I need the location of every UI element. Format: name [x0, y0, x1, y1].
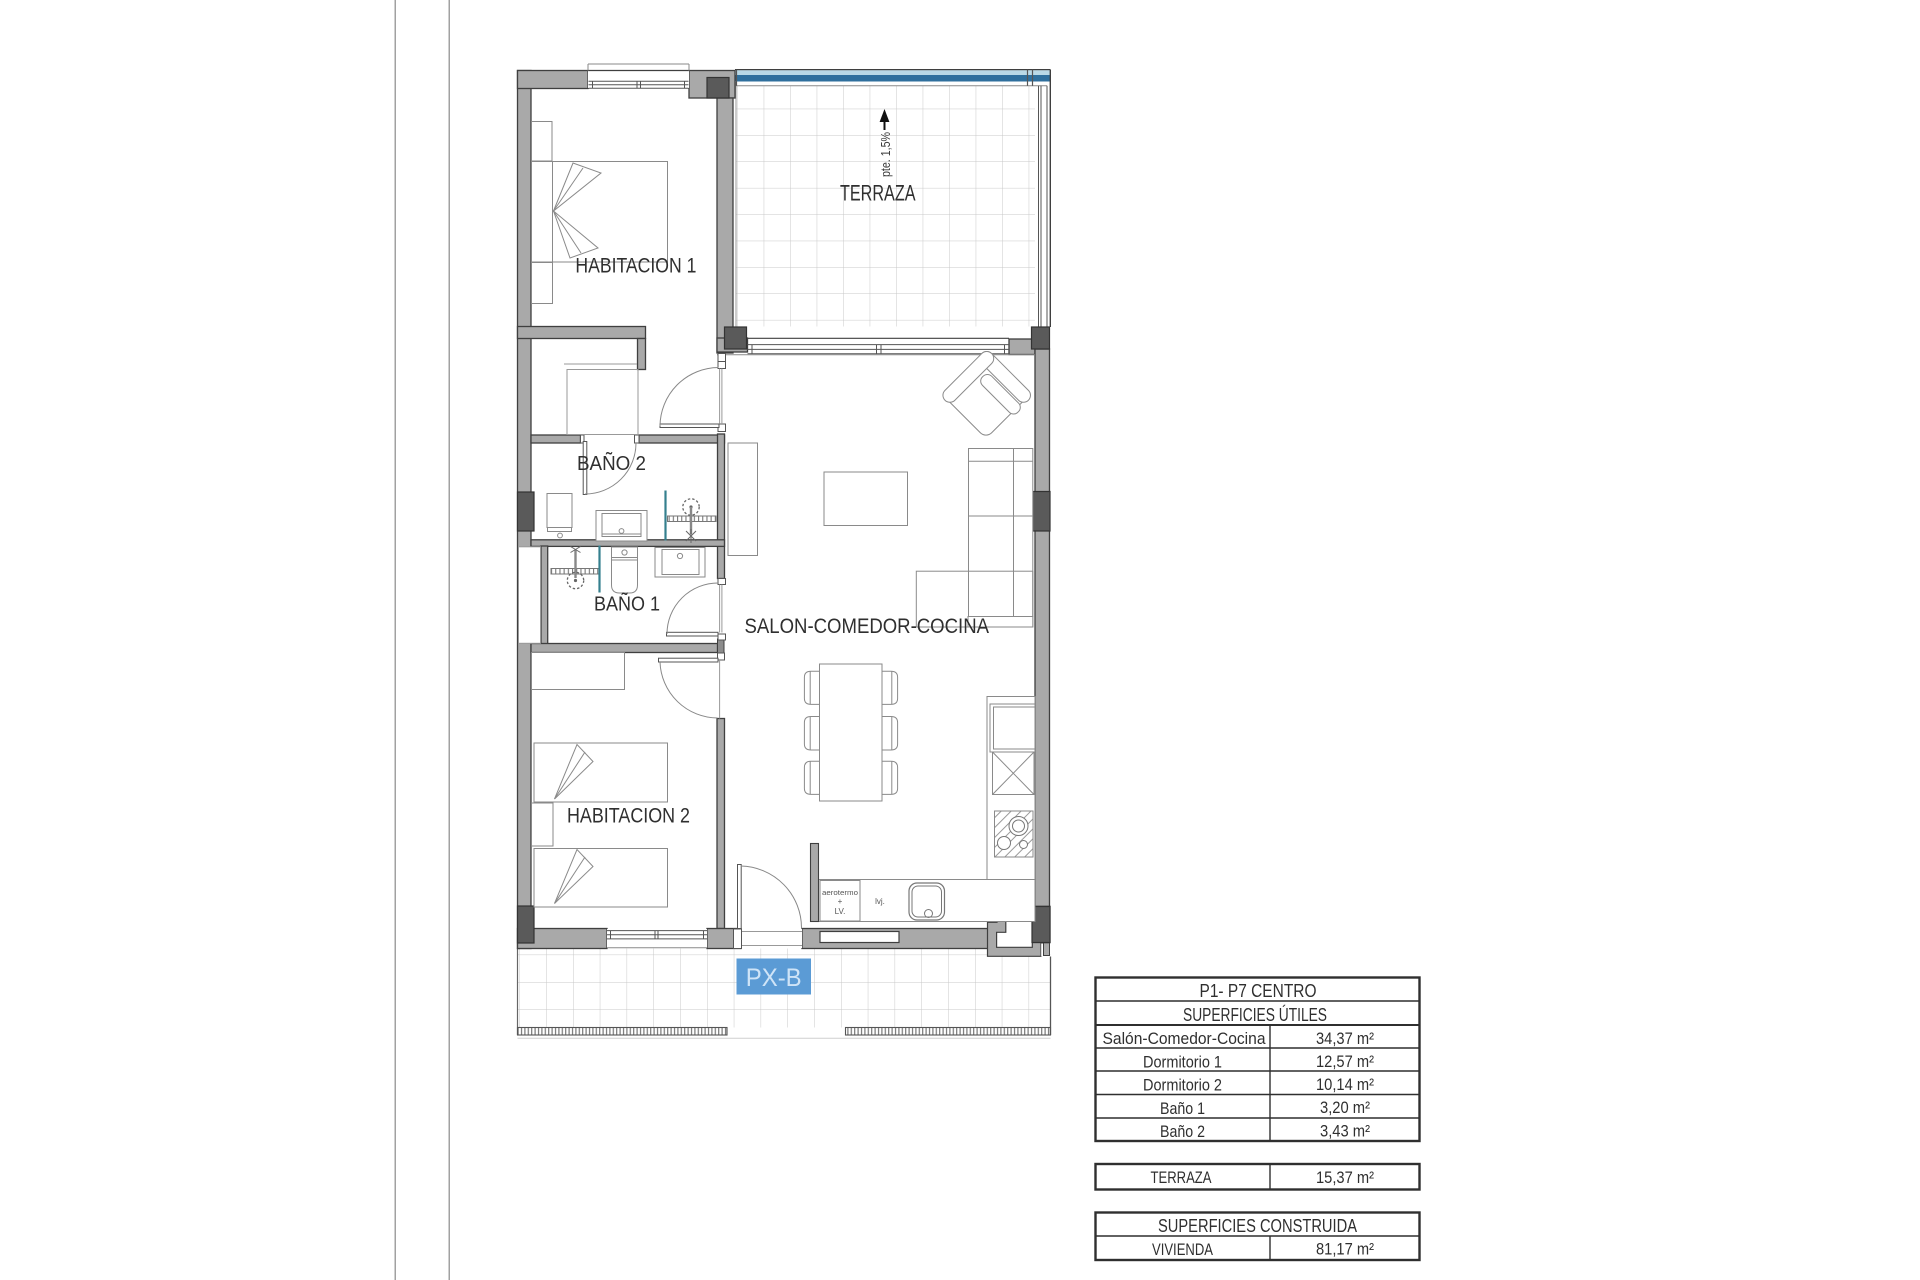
svg-text:34,37 m²: 34,37 m²	[1316, 1029, 1374, 1048]
svg-text:81,17 m²: 81,17 m²	[1316, 1240, 1374, 1259]
svg-text:Baño 2: Baño 2	[1160, 1122, 1205, 1141]
svg-text:SUPERFICIES ÚTILES: SUPERFICIES ÚTILES	[1183, 1004, 1327, 1025]
svg-text:Dormitorio 2: Dormitorio 2	[1143, 1076, 1222, 1095]
svg-text:TERRAZA: TERRAZA	[1151, 1168, 1213, 1187]
svg-text:VIVIENDA: VIVIENDA	[1152, 1240, 1214, 1259]
svg-text:3,43 m²: 3,43 m²	[1320, 1122, 1370, 1141]
svg-text:pte. 1,5%: pte. 1,5%	[878, 132, 893, 177]
svg-text:HABITACION 1: HABITACION 1	[575, 255, 696, 278]
svg-text:Salón-Comedor-Cocina: Salón-Comedor-Cocina	[1103, 1029, 1266, 1048]
svg-text:BAÑO 1: BAÑO 1	[594, 592, 660, 616]
svg-text:3,20 m²: 3,20 m²	[1320, 1098, 1370, 1117]
svg-text:PX-B: PX-B	[746, 964, 802, 992]
svg-text:SALON-COMEDOR-COCINA: SALON-COMEDOR-COCINA	[745, 615, 990, 638]
svg-text:Baño 1: Baño 1	[1160, 1099, 1205, 1118]
svg-text:TERRAZA: TERRAZA	[840, 181, 916, 206]
svg-text:10,14 m²: 10,14 m²	[1316, 1075, 1374, 1094]
svg-text:HABITACION 2: HABITACION 2	[567, 805, 690, 828]
svg-text:SUPERFICIES CONSTRUIDA: SUPERFICIES CONSTRUIDA	[1158, 1216, 1357, 1236]
svg-text:15,37 m²: 15,37 m²	[1316, 1168, 1374, 1187]
svg-text:aerotermo: aerotermo	[822, 888, 858, 897]
svg-text:Dormitorio 1: Dormitorio 1	[1143, 1053, 1222, 1072]
svg-text:P1- P7 CENTRO: P1- P7 CENTRO	[1200, 981, 1317, 1001]
svg-text:lvj.: lvj.	[875, 897, 885, 906]
svg-text:+: +	[838, 897, 843, 906]
svg-text:BAÑO 2: BAÑO 2	[577, 451, 646, 475]
svg-text:12,57 m²: 12,57 m²	[1316, 1052, 1374, 1071]
svg-text:LV.: LV.	[835, 907, 846, 916]
